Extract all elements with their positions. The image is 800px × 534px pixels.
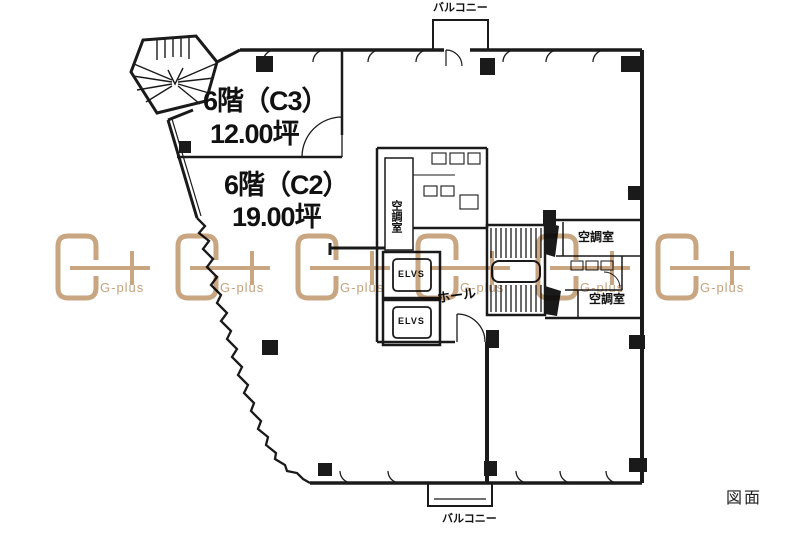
gplus-watermark-text: G-plus [220, 281, 264, 294]
watermark-layer [0, 0, 800, 534]
gplus-watermark-text: G-plus [700, 281, 744, 294]
hvac-right-top-label: 空調室 [578, 231, 614, 243]
unit-c2-area: 19.00坪 [232, 204, 321, 231]
floor-plan-page: 6階（C3） 12.00坪 6階（C2） 19.00坪 バルコニー バルコニー … [0, 0, 800, 534]
gplus-watermark-text: G-plus [340, 281, 384, 294]
elevator-1-label: ELVS [398, 270, 425, 279]
unit-c3-label: 6階（C3） [203, 88, 328, 115]
unit-c2-label: 6階（C2） [224, 172, 349, 199]
balcony-top-label: バルコニー [433, 3, 488, 14]
gplus-watermark-text: G-plus [100, 281, 144, 294]
gplus-watermark-text: G-plus [580, 281, 624, 294]
drawing-type-label: 図面 [726, 491, 762, 507]
elevator-2-label: ELVS [398, 317, 425, 326]
gplus-watermark-text: G-plus [460, 281, 504, 294]
hvac-left-label: 空調室 [390, 200, 401, 233]
unit-c3-area: 12.00坪 [210, 121, 299, 148]
balcony-bottom-label: バルコニー [442, 514, 497, 525]
